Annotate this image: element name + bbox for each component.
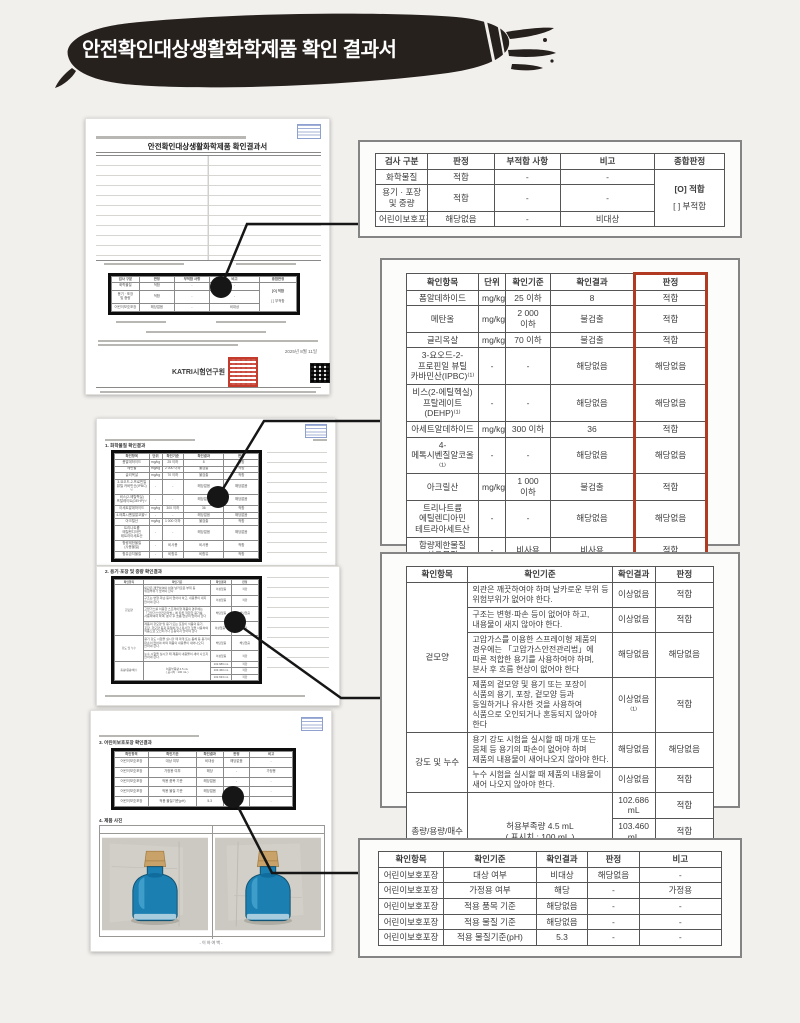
table-cell: 불검출 (184, 466, 224, 473)
table-cell: - (174, 290, 209, 303)
table-cell: - (588, 898, 639, 914)
footnote-line (98, 340, 318, 342)
divider (96, 152, 321, 153)
table-cell: 비고 (560, 154, 654, 170)
mini-summary: 검사 구분판정부적합 사항비고종합판정화학물질적합--[O] 적합[ ] 부적합… (111, 276, 297, 312)
table-cell: 폼알데하이드 (115, 459, 150, 466)
doc3-section-title: 2. 용기·포장 및 중량 확인결과 (105, 569, 162, 575)
table-cell: - (250, 787, 293, 797)
table-cell: 적합 (231, 595, 258, 606)
chemical-table: 확인항목단위확인기준확인결과판정폼알데하이드mg/kg25 이하8적합메탄올mg… (406, 272, 708, 532)
table-cell: 적합 (231, 651, 258, 662)
header-line (105, 439, 195, 441)
table-cell: 비대상 (560, 211, 654, 227)
table-cell: mg/kg (149, 466, 162, 473)
table-cell: 어린이보호포장 (115, 777, 149, 787)
table-cell: 적합 (655, 582, 713, 607)
table-cell: 3-요오드-2-프로핀일 뷰틸 카바민산(IPBC)⁽¹⁾ (115, 479, 150, 494)
table-cell: - (210, 290, 260, 303)
table-cell: 적합 (224, 466, 259, 473)
table-cell: 어린이보호포장 (115, 787, 149, 797)
table-cell: 해당없음 (211, 606, 231, 621)
table-cell: mg/kg (479, 306, 506, 332)
table-cell: 대상 여부 (444, 867, 537, 883)
table-cell: 아크릴산 (115, 519, 150, 526)
table-cell: 불검출 (551, 474, 635, 500)
table-cell: 해당없음 (635, 437, 707, 474)
table-cell: 25 이하 (506, 290, 551, 306)
document-page-3: 2. 용기·포장 및 중량 확인결과 확인항목확인기준확인결과판정겉모양외관은 … (96, 566, 340, 706)
table-cell: 확인결과 (612, 567, 655, 583)
doc1-title: 안전확인대상생활화학제품 확인결과서 (86, 141, 329, 152)
table-cell: mg/kg (149, 459, 162, 466)
remark-column-lines (267, 577, 329, 677)
table-cell: - (149, 552, 162, 559)
mini-chemical: 확인항목단위확인기준확인결과판정폼알데하이드mg/kg25 이하8적합메탄올mg… (114, 453, 259, 559)
chemical-table: 확인항목단위확인기준확인결과판정폼알데하이드mg/kg25 이하8적합메탄올mg… (406, 272, 708, 581)
table-cell: 비함유 (184, 552, 224, 559)
table-cell: 어린이보호포장 (379, 883, 444, 899)
table-cell: 해당없음 (551, 348, 635, 385)
table-cell: mg/kg (479, 474, 506, 500)
table-cell: 해당없음 (635, 348, 707, 385)
table-cell: 적용 품목 기준 (148, 777, 196, 787)
table-cell: 겉모양 (407, 582, 468, 732)
table-cell: 4-메톡시벤질알코올⁽¹⁾ (115, 512, 150, 519)
table-cell: 적합 (655, 607, 713, 632)
table-cell: 제품의 겉모양 및 용기 또는 포장이 식품의 용기, 포장, 겉모양 등과 동… (143, 621, 211, 636)
table-cell: 해당없음 (536, 898, 587, 914)
table-cell: 가정용 (250, 767, 293, 777)
mini-child: 확인항목확인기준확인결과판정비고어린이보호포장대상 여부비대상해당없음-어린이보… (114, 751, 293, 807)
table-cell: 5.3 (536, 930, 587, 946)
table-cell: 해당없음 (231, 636, 258, 651)
table-cell: 해당없음 (139, 304, 174, 312)
table-cell: 고압가스를 이용한 스프레이형 제품의 경우에는 「고압가스안전관리법」에 따른… (468, 632, 612, 677)
footnote-line (100, 391, 316, 393)
table-cell: 트리나트륨 에틸렌디아민 테트라아세트산 (115, 525, 150, 540)
table-cell: 강도 및 누수 (407, 732, 468, 792)
table-cell: 글리옥살 (115, 473, 150, 480)
table-cell: 4-메톡시벤질알코올⁽¹⁾ (407, 437, 479, 474)
table-cell: - (210, 282, 260, 290)
table-cell: 2 000 이하 (506, 306, 551, 332)
table-cell: 적합 (224, 541, 259, 552)
org-name: KATRI시험연구원 (172, 367, 225, 377)
form-line (236, 263, 296, 265)
table-cell: 해당없음 (551, 500, 635, 537)
table-cell: 어린이보호포장 (115, 757, 149, 767)
table-cell: 함량제한물질 (사용물질) (115, 541, 150, 552)
table-cell: 비고 (639, 852, 721, 868)
table-cell: 트리나트륨 에틸렌디아민 테트라아세트산 (407, 500, 479, 537)
table-cell: 판정 (655, 567, 713, 583)
table-cell: 적용 물질기준(pH) (148, 797, 196, 807)
table-cell: - (506, 348, 551, 385)
header-banner: 안전확인대상생활화학제품 확인 결과서 (38, 6, 568, 100)
table-cell: 적용 품목 기준 (444, 898, 537, 914)
qr-code-icon (310, 363, 330, 383)
table-cell: 가정용 (639, 883, 721, 899)
table-cell: - (494, 169, 560, 185)
table-cell: mg/kg (149, 519, 162, 526)
table-cell: - (588, 883, 639, 899)
table-cell: - (162, 512, 184, 519)
table-cell: 해당없음 (211, 636, 231, 651)
form-line (104, 263, 184, 265)
table-cell: 검사 구분 (376, 154, 428, 170)
table-cell: - (149, 512, 162, 519)
table-cell: 화학물질 (376, 169, 428, 185)
table-cell: 불검출 (184, 473, 224, 480)
approval-stamp-icon (305, 424, 327, 438)
table-cell: 적합 (635, 421, 707, 437)
table-cell: 비대상 (210, 304, 260, 312)
table-cell: 용기 강도 시험을 실시할 때 마개 또는 몸체 등 용기의 파손이 없어야 하… (468, 732, 612, 767)
magnified-child-panel: 확인항목확인기준확인결과판정비고어린이보호포장대상 여부비대상해당없음-어린이보… (358, 838, 742, 958)
table-cell: 비대상 (196, 757, 223, 767)
table-cell: 글리옥살 (407, 332, 479, 348)
document-page-1: 안전확인대상생활화학제품 확인결과서 검사 구분판정부적합 사항비고종합판정화학… (85, 118, 330, 395)
table-cell: - (174, 304, 209, 312)
table-cell: 적합 (224, 473, 259, 480)
table-cell: 해당없음 (224, 525, 259, 540)
table-cell: 구조는 변형·파손 등이 없어야 하고, 내용물이 새지 않아야 한다. (468, 607, 612, 632)
table-cell: 불검출 (184, 519, 224, 526)
table-cell: 비대상 (536, 867, 587, 883)
table-cell: 102.686 mL (612, 792, 655, 818)
page-number-line (313, 439, 327, 441)
table-cell: 적합 (635, 332, 707, 348)
photo-label-row (100, 826, 324, 834)
divider (96, 387, 321, 388)
table-cell: 이상없음⁽¹⁾ (612, 677, 655, 732)
table-cell: 비스(2-에틸헥실)프탈레이트(DEHP)⁽¹⁾ (115, 495, 150, 506)
form-grid (96, 155, 321, 261)
mini-summary: 검사 구분판정부적합 사항비고종합판정화학물질적합--[O] 적합[ ] 부적합… (111, 276, 297, 312)
table-cell: 해당없음 (231, 606, 258, 621)
product-photo-block (99, 825, 325, 937)
table-cell: 적용 물질기준(pH) (444, 930, 537, 946)
table-cell: - (506, 500, 551, 537)
table-cell: [O] 적합[ ] 부적합 (259, 282, 296, 311)
child-table: 확인항목확인기준확인결과판정비고어린이보호포장대상 여부비대상해당없음-어린이보… (378, 851, 722, 946)
table-cell: 불검출 (551, 306, 635, 332)
table-cell: - (639, 867, 721, 883)
table-cell: 해당 (536, 883, 587, 899)
table-cell: 적합 (231, 585, 258, 596)
table-cell: 적합 (224, 519, 259, 526)
table-cell: 70 이하 (506, 332, 551, 348)
table-cell: mg/kg (479, 332, 506, 348)
table-cell: 용기 · 포장 및 중량 (112, 290, 140, 303)
table-cell: 화학물질 (112, 282, 140, 290)
footer-line (105, 695, 305, 697)
signature-line (216, 321, 286, 323)
table-cell: 강도 및 누수 (115, 636, 144, 662)
table-cell: 외관은 깨끗하여야 하며 날카로운 부위 등 위험부위가 없어야 한다. (143, 585, 211, 596)
approval-stamp-icon (297, 124, 321, 139)
document-page-4: 3. 어린이보호포장 확인결과 확인항목확인기준확인결과판정비고어린이보호포장대… (90, 710, 332, 952)
table-cell: - (560, 169, 654, 185)
table-cell: - (174, 282, 209, 290)
table-cell: 부적합 사항 (494, 154, 560, 170)
table-cell: 적합 (224, 459, 259, 466)
table-cell: mg/kg (149, 473, 162, 480)
blank-below-caption: - 이 하 여 백 - (91, 940, 331, 946)
doc4-section-photo-title: 4. 제품 사진 (99, 818, 122, 824)
table-cell: 36 (551, 421, 635, 437)
table-cell: 겉모양 (115, 585, 144, 636)
table-cell: 해당없음 (428, 211, 494, 227)
mini-package: 확인항목확인기준확인결과판정겉모양외관은 깨끗하여야 하며 날카로운 부위 등 … (114, 579, 259, 681)
table-cell: - (479, 348, 506, 385)
table-cell: 비사용 (162, 541, 184, 552)
table-cell: 3-요오드-2-프로핀일 뷰틸 카바민산(IPBC)⁽¹⁾ (407, 348, 479, 385)
table-cell: 적합 (635, 474, 707, 500)
approval-stamp-icon (301, 717, 323, 731)
table-cell: - (639, 914, 721, 930)
table-cell: - (223, 777, 250, 787)
product-photo-right (213, 834, 325, 939)
table-cell: - (560, 185, 654, 211)
table-cell: 비스(2-에틸헥실)프탈레이트(DEHP)⁽¹⁾ (407, 385, 479, 422)
table-cell: - (479, 385, 506, 422)
issue-date: 2025년 8월 11일 (285, 349, 317, 355)
table-cell: 300 이하 (506, 421, 551, 437)
table-cell: 해당없음 (196, 787, 223, 797)
table-cell: 메탄올 (407, 306, 479, 332)
table-cell: 2 000 이하 (162, 466, 184, 473)
table-cell: 이상없음 (612, 607, 655, 632)
table-cell: 비함유 (162, 552, 184, 559)
table-cell: 확인결과 (551, 274, 635, 291)
table-cell: - (149, 495, 162, 506)
bottle-photo-icon (215, 836, 321, 932)
table-cell: 해당없음 (655, 732, 713, 767)
table-cell: 어린이보호포장 (379, 930, 444, 946)
table-cell: 가정용 여부 (148, 767, 196, 777)
remark-column-lines (267, 452, 327, 560)
table-cell: 적합 (231, 674, 258, 680)
table-cell: 판정 (588, 852, 639, 868)
table-cell: - (223, 797, 250, 807)
table-cell: 어린이보호포장 (115, 767, 149, 777)
table-cell: 해당없음 (551, 437, 635, 474)
highlight-box-package: 확인항목확인기준확인결과판정겉모양외관은 깨끗하여야 하며 날카로운 부위 등 … (111, 576, 262, 684)
table-cell: 비사용 (184, 541, 224, 552)
table-cell: 어린이보호포장 (112, 304, 140, 312)
table-cell: 확인기준 (506, 274, 551, 291)
package-table: 확인항목확인기준확인결과판정겉모양외관은 깨끗하여야 하며 날카로운 부위 등 … (406, 566, 714, 794)
table-cell: 메탄올 (115, 466, 150, 473)
table-cell: 1 000 이하 (162, 519, 184, 526)
magnified-summary-panel: 검사 구분판정부적합 사항비고종합판정화학물질적합--[O] 적합[ ] 부적합… (358, 140, 742, 238)
table-cell: - (250, 757, 293, 767)
table-cell: 적합 (428, 169, 494, 185)
summary-table: 검사 구분판정부적합 사항비고종합판정화학물질적합--[O] 적합[ ] 부적합… (375, 153, 725, 227)
mini-package: 확인항목확인기준확인결과판정겉모양외관은 깨끗하여야 하며 날카로운 부위 등 … (114, 579, 259, 681)
summary-table: 검사 구분판정부적합 사항비고종합판정화학물질적합--[O] 적합[ ] 부적합… (375, 153, 725, 225)
table-cell: 해당없음 (224, 479, 259, 494)
table-cell: 불검출 (551, 332, 635, 348)
table-cell: 적용 물질 기준 (444, 914, 537, 930)
table-cell: 이상없음 (211, 651, 231, 662)
package-table: 확인항목확인기준확인결과판정겉모양외관은 깨끗하여야 하며 날카로운 부위 등 … (406, 566, 714, 871)
table-cell: 이상없음 (612, 767, 655, 792)
signature-line (116, 321, 166, 323)
table-cell: 102.633 mL (211, 674, 231, 680)
table-cell: 함유금지물질 (115, 552, 150, 559)
table-cell: 해당없음 (635, 385, 707, 422)
table-cell: 고압가스를 이용한 스프레이형 제품의 경우에는 「고압가스안전관리법」에 따른… (143, 606, 211, 621)
table-cell: 해당없음 (184, 479, 224, 494)
table-cell: 해당없음 (612, 732, 655, 767)
table-cell: - (506, 437, 551, 474)
table-cell: 적합 (635, 290, 707, 306)
table-cell: 적합 (224, 506, 259, 513)
table-cell: mg/kg (479, 421, 506, 437)
official-seal-icon (228, 357, 258, 387)
table-cell: - (162, 495, 184, 506)
table-cell: 종합판정 (655, 154, 725, 170)
table-cell: - (223, 767, 250, 777)
table-cell: 아크릴산 (407, 474, 479, 500)
table-cell: 누수 시험을 실시할 때 제품의 내용물이 새어 나오지 않아야 한다. (143, 651, 211, 662)
table-cell: 어린이보호포장 (379, 914, 444, 930)
table-cell: 적합 (139, 290, 174, 303)
table-cell: 해당 (196, 767, 223, 777)
table-cell: 적합 (635, 306, 707, 332)
table-cell: - (149, 479, 162, 494)
page-title: 안전확인대상생활화학제품 확인 결과서 (82, 33, 502, 62)
table-cell: - (506, 385, 551, 422)
table-cell: 8 (184, 459, 224, 466)
table-cell: - (588, 914, 639, 930)
table-cell: mg/kg (149, 506, 162, 513)
table-cell: 8 (551, 290, 635, 306)
table-cell: - (479, 500, 506, 537)
table-cell: 용기 · 포장 및 중량 (376, 185, 428, 211)
table-cell: - (588, 930, 639, 946)
table-cell: - (149, 541, 162, 552)
table-cell: 해당없음 (184, 512, 224, 519)
table-cell: 해당없음 (223, 757, 250, 767)
table-cell: - (250, 777, 293, 787)
table-cell: 적합 (224, 552, 259, 559)
child-table: 확인항목확인기준확인결과판정비고어린이보호포장대상 여부비대상해당없음-어린이보… (378, 851, 722, 945)
footnote-line (98, 344, 238, 346)
table-cell: 이상없음 (211, 595, 231, 606)
table-cell: - (639, 898, 721, 914)
table-cell: 해당없음 (536, 914, 587, 930)
table-cell: 용기 강도 시험을 실시할 때 마개 또는 몸체 등 용기의 파손이 없어야 하… (143, 636, 211, 651)
table-cell: - (494, 185, 560, 211)
table-cell: - (639, 930, 721, 946)
table-cell: 확인항목 (379, 852, 444, 868)
table-cell: 해당없음 (184, 525, 224, 540)
table-cell: 이상없음 (211, 585, 231, 596)
table-cell: 해당없음 (184, 495, 224, 506)
table-cell: 해당없음 (635, 500, 707, 537)
table-cell: 해당없음 (196, 777, 223, 787)
table-cell: 아세트알데하이드 (407, 421, 479, 437)
table-cell: 해당없음 (588, 867, 639, 883)
highlight-box-summary: 검사 구분판정부적합 사항비고종합판정화학물질적합--[O] 적합[ ] 부적합… (108, 273, 300, 315)
magnified-package-panel: 확인항목확인기준확인결과판정겉모양외관은 깨끗하여야 하며 날카로운 부위 등 … (380, 552, 740, 808)
table-cell: 1 000 이하 (506, 474, 551, 500)
table-cell: 확인기준 (468, 567, 612, 583)
table-cell: 이상없음⁽¹⁾ (211, 621, 231, 636)
table-cell: - (149, 525, 162, 540)
table-cell: 확인항목 (407, 274, 479, 291)
table-cell: 허용부족량 4.5 mL ( 표시치 : 100 mL ) (143, 662, 211, 681)
table-cell: [O] 적합[ ] 부적합 (655, 169, 725, 227)
table-cell: - (162, 479, 184, 494)
doc4-section-child-title: 3. 어린이보호포장 확인결과 (99, 740, 152, 746)
table-cell: 어린이보호포장 (379, 867, 444, 883)
product-photo-left (100, 834, 213, 939)
table-cell: 해당없음 (655, 632, 713, 677)
doc2-section-title: 1. 화학물질 확인결과 (105, 443, 145, 449)
table-cell: 구조는 변형·파손 등이 없어야 하고, 내용물이 새지 않아야 한다. (143, 595, 211, 606)
table-cell: 해당없음 (551, 385, 635, 422)
table-cell: 해당없음 (612, 632, 655, 677)
table-cell: 확인항목 (407, 567, 468, 583)
validity-line (146, 331, 266, 333)
header-line (99, 735, 199, 737)
table-cell: 70 이하 (162, 473, 184, 480)
table-cell: 아세트알데하이드 (115, 506, 150, 513)
table-cell: 해당없음 (224, 512, 259, 519)
table-cell: 대상 여부 (148, 757, 196, 767)
table-cell: 이상없음 (612, 582, 655, 607)
table-cell: 가정용 여부 (444, 883, 537, 899)
bottle-photo-icon (102, 836, 208, 932)
table-cell: mg/kg (479, 290, 506, 306)
table-cell: 어린이보호포장 (376, 211, 428, 227)
table-cell: 적합 (231, 621, 258, 636)
table-cell: 적합 (139, 282, 174, 290)
notice-line (96, 136, 246, 139)
document-page-2: 1. 화학물질 확인결과 확인항목단위확인기준확인결과판정폼알데하이드mg/kg… (96, 418, 336, 566)
table-cell: 5.3 (196, 797, 223, 807)
table-cell: 제품의 겉모양 및 용기 또는 포장이 식품의 용기, 포장, 겉모양 등과 동… (468, 677, 612, 732)
table-cell: 판정 (635, 274, 707, 291)
table-cell: 적합 (655, 677, 713, 732)
mini-chemical: 확인항목단위확인기준확인결과판정폼알데하이드mg/kg25 이하8적합메탄올mg… (114, 453, 259, 559)
infographic-canvas: 안전확인대상생활화학제품 확인 결과서 안전확인대상생활화학제품 확인결과서 검… (0, 0, 800, 1023)
table-cell: 확인기준 (444, 852, 537, 868)
table-cell: - (494, 211, 560, 227)
table-cell: 판정 (428, 154, 494, 170)
magnified-chemical-panel: 확인항목단위확인기준확인결과판정폼알데하이드mg/kg25 이하8적합메탄올mg… (380, 258, 740, 546)
table-cell: 총량/용량/매수 (115, 662, 144, 681)
highlight-box-chemical: 확인항목단위확인기준확인결과판정폼알데하이드mg/kg25 이하8적합메탄올mg… (111, 450, 262, 562)
table-cell: 적합 (428, 185, 494, 211)
table-cell: 외관은 깨끗하여야 하며 날카로운 부위 등 위험부위가 없어야 한다. (468, 582, 612, 607)
mini-child: 확인항목확인기준확인결과판정비고어린이보호포장대상 여부비대상해당없음-어린이보… (114, 751, 293, 807)
table-cell: 해당없음 (224, 495, 259, 506)
table-cell: 누수 시험을 실시할 때 제품의 내용물이 새어 나오지 않아야 한다. (468, 767, 612, 792)
table-cell: 적용 물질 기준 (148, 787, 196, 797)
table-cell: - (250, 797, 293, 807)
table-cell: 적합 (655, 792, 713, 818)
table-cell: 25 이하 (162, 459, 184, 466)
table-cell: 단위 (479, 274, 506, 291)
table-cell: 36 (184, 506, 224, 513)
table-cell: 어린이보호포장 (115, 797, 149, 807)
